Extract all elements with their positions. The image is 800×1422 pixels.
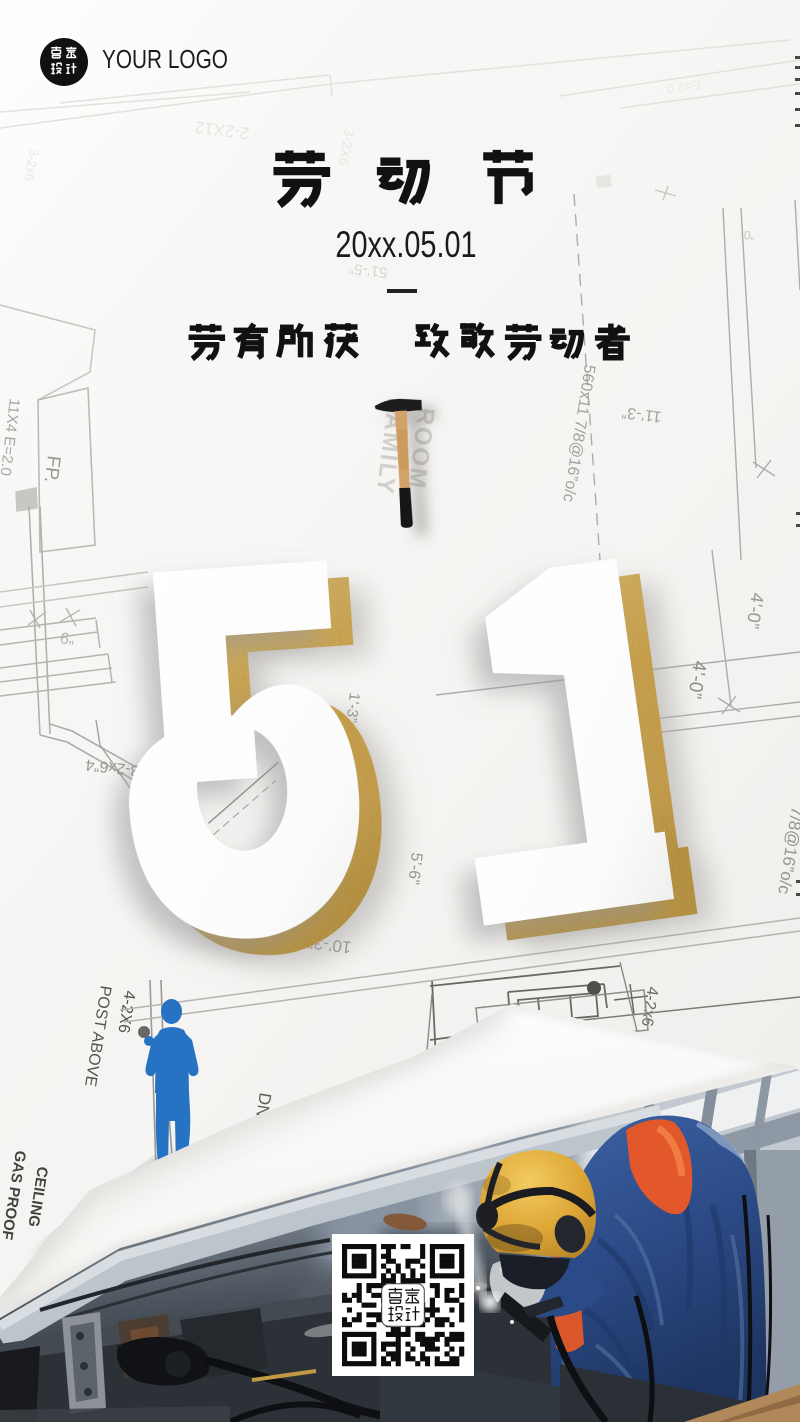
svg-text:FP.: FP. [40, 454, 64, 483]
svg-text:“0-: “0- [739, 227, 755, 243]
svg-text:YOUR LOGO: YOUR LOGO [102, 45, 228, 74]
svg-text:“9: “9 [59, 628, 75, 647]
svg-text:20xx.05.01: 20xx.05.01 [335, 225, 476, 266]
